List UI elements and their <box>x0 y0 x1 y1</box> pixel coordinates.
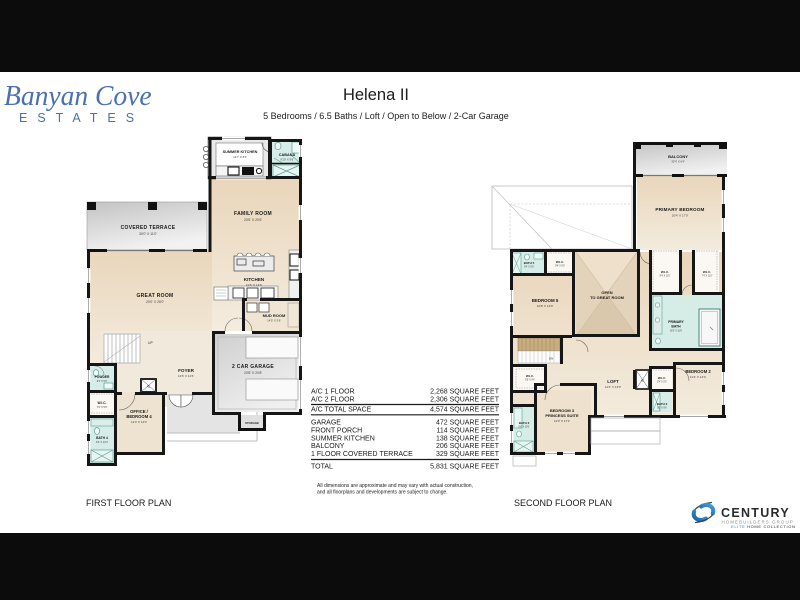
svg-text:BATH: BATH <box>671 325 681 329</box>
svg-text:14'5' X 5'6': 14'5' X 5'6' <box>267 319 281 323</box>
svg-text:BATH 2: BATH 2 <box>657 402 668 406</box>
svg-text:and all floorplans and develop: and all floorplans and developments are … <box>317 490 448 496</box>
svg-text:PRIMARY BEDROOM: PRIMARY BEDROOM <box>655 207 704 212</box>
svg-text:FAMILY ROOM: FAMILY ROOM <box>234 211 272 217</box>
svg-text:COVERED TERRACE: COVERED TERRACE <box>121 225 176 231</box>
svg-text:PRINCESS SUITE: PRINCESS SUITE <box>545 413 579 418</box>
svg-text:AC: AC <box>147 385 151 389</box>
svg-text:9'4' X 5'0': 9'4' X 5'0' <box>524 267 534 269</box>
svg-text:POWDER: POWDER <box>95 375 110 379</box>
svg-text:1 FLOOR COVERED TERRACE: 1 FLOOR COVERED TERRACE <box>311 451 413 458</box>
svg-text:SUMMER KITCHEN: SUMMER KITCHEN <box>223 150 258 154</box>
svg-text:UP: UP <box>148 341 153 345</box>
svg-text:W.I.C.: W.I.C. <box>526 374 534 378</box>
svg-text:5'4' X 5'0': 5'4' X 5'0' <box>657 382 667 384</box>
svg-text:BALCONY: BALCONY <box>668 154 688 159</box>
svg-text:6'4' X 12'4': 6'4' X 12'4' <box>96 441 108 444</box>
svg-text:20'8' X 20'8': 20'8' X 20'8' <box>244 371 262 375</box>
svg-text:138 SQUARE FEET: 138 SQUARE FEET <box>436 436 500 443</box>
svg-text:W.I.C.: W.I.C. <box>661 270 669 274</box>
svg-text:CABANA: CABANA <box>279 153 296 157</box>
svg-text:W.I.C.: W.I.C. <box>658 376 666 380</box>
svg-text:9'0' X 6'4': 9'0' X 6'4' <box>525 380 535 382</box>
svg-text:5'6' X 10'0': 5'6' X 10'0' <box>519 427 531 429</box>
svg-text:W.I.C.: W.I.C. <box>556 260 564 264</box>
svg-text:LOFT: LOFT <box>607 379 619 384</box>
svg-text:20'6' X 20'6': 20'6' X 20'6' <box>244 218 262 222</box>
svg-text:STORAGE: STORAGE <box>245 421 259 425</box>
svg-text:ELITE HOME COLLECTION: ELITE HOME COLLECTION <box>731 524 796 529</box>
svg-text:10'8' X 14'0': 10'8' X 14'0' <box>537 304 554 308</box>
svg-text:DN: DN <box>549 357 553 361</box>
svg-text:7'0' X 5'0': 7'0' X 5'0' <box>97 406 108 409</box>
svg-text:11'6' X 11'6': 11'6' X 11'6' <box>178 374 194 378</box>
svg-text:21'6' X 14'6': 21'6' X 14'6' <box>246 283 263 287</box>
svg-text:5'0' X 9'6': 5'0' X 9'6' <box>657 408 667 410</box>
svg-text:All dimensions are approximate: All dimensions are approximate and may v… <box>317 483 473 489</box>
svg-text:2,268 SQUARE FEET: 2,268 SQUARE FEET <box>430 389 500 396</box>
svg-text:W.I.C.: W.I.C. <box>98 401 107 405</box>
svg-text:BALCONY: BALCONY <box>311 443 345 450</box>
svg-text:TOTAL: TOTAL <box>311 464 333 471</box>
svg-text:9'4' X 5'0': 9'4' X 5'0' <box>555 266 565 268</box>
svg-text:12'4' X 14'0': 12'4' X 14'0' <box>131 420 147 424</box>
svg-text:5,831 SQUARE FEET: 5,831 SQUARE FEET <box>430 464 500 471</box>
svg-text:SUMMER KITCHEN: SUMMER KITCHEN <box>311 436 375 443</box>
svg-text:32'4' X 6'4': 32'4' X 6'4' <box>671 160 685 164</box>
svg-text:4,574 SQUARE FEET: 4,574 SQUARE FEET <box>430 407 500 414</box>
svg-text:TO GREAT ROOM: TO GREAT ROOM <box>590 295 625 300</box>
svg-text:PRIMARY: PRIMARY <box>668 320 684 324</box>
svg-text:2 CAR GARAGE: 2 CAR GARAGE <box>232 364 274 370</box>
svg-text:GREAT ROOM: GREAT ROOM <box>136 293 173 299</box>
svg-text:CENTURY: CENTURY <box>721 506 790 520</box>
svg-text:AC: AC <box>641 380 645 383</box>
svg-text:BEDROOM 2: BEDROOM 2 <box>685 369 711 374</box>
svg-text:BATH 5: BATH 5 <box>524 261 535 265</box>
svg-text:472 SQUARE FEET: 472 SQUARE FEET <box>436 420 500 427</box>
svg-text:11'4' X 14'0': 11'4' X 14'0' <box>690 375 707 379</box>
svg-text:FOYER: FOYER <box>178 368 195 373</box>
svg-text:14'7' X 8'4': 14'7' X 8'4' <box>233 155 247 159</box>
svg-text:BEDROOM 4: BEDROOM 4 <box>126 414 152 419</box>
svg-text:MUD ROOM: MUD ROOM <box>263 313 286 318</box>
svg-text:114 SQUARE FEET: 114 SQUARE FEET <box>436 428 499 435</box>
svg-text:12'0' X 17'2': 12'0' X 17'2' <box>554 419 570 423</box>
svg-text:6'4' X 5'0': 6'4' X 5'0' <box>97 380 108 383</box>
svg-text:GARAGE: GARAGE <box>311 420 341 427</box>
svg-text:16'0' X 10'6': 16'0' X 10'6' <box>670 331 683 333</box>
svg-text:FRONT PORCH: FRONT PORCH <box>311 428 362 435</box>
svg-text:329 SQUARE FEET: 329 SQUARE FEET <box>436 451 500 458</box>
svg-text:A/C 1 FLOOR: A/C 1 FLOOR <box>311 389 355 396</box>
svg-text:206 SQUARE FEET: 206 SQUARE FEET <box>436 443 500 450</box>
svg-text:30'0' X 11'0': 30'0' X 11'0' <box>139 232 157 236</box>
svg-text:11'4' X 13'0': 11'4' X 13'0' <box>605 385 622 389</box>
svg-text:BATH 4: BATH 4 <box>96 436 108 440</box>
svg-text:7'4' X 11'0': 7'4' X 11'0' <box>702 276 713 278</box>
svg-text:8'4' X 11'0': 8'4' X 11'0' <box>660 276 671 278</box>
svg-text:9'10' X 9'6': 9'10' X 9'6' <box>280 158 294 162</box>
svg-text:BATH 3: BATH 3 <box>519 421 530 425</box>
svg-text:KITCHEN: KITCHEN <box>244 277 265 282</box>
svg-text:20'4' X 17'0': 20'4' X 17'0' <box>672 214 689 218</box>
svg-text:A/C TOTAL SPACE: A/C TOTAL SPACE <box>311 407 372 414</box>
svg-text:2,306 SQUARE FEET: 2,306 SQUARE FEET <box>430 397 500 404</box>
svg-text:20'0' X 26'0': 20'0' X 26'0' <box>146 300 164 304</box>
svg-text:A/C 2 FLOOR: A/C 2 FLOOR <box>311 397 355 404</box>
svg-text:W.I.C.: W.I.C. <box>703 270 711 274</box>
svg-text:BEDROOM 5: BEDROOM 5 <box>532 298 559 303</box>
